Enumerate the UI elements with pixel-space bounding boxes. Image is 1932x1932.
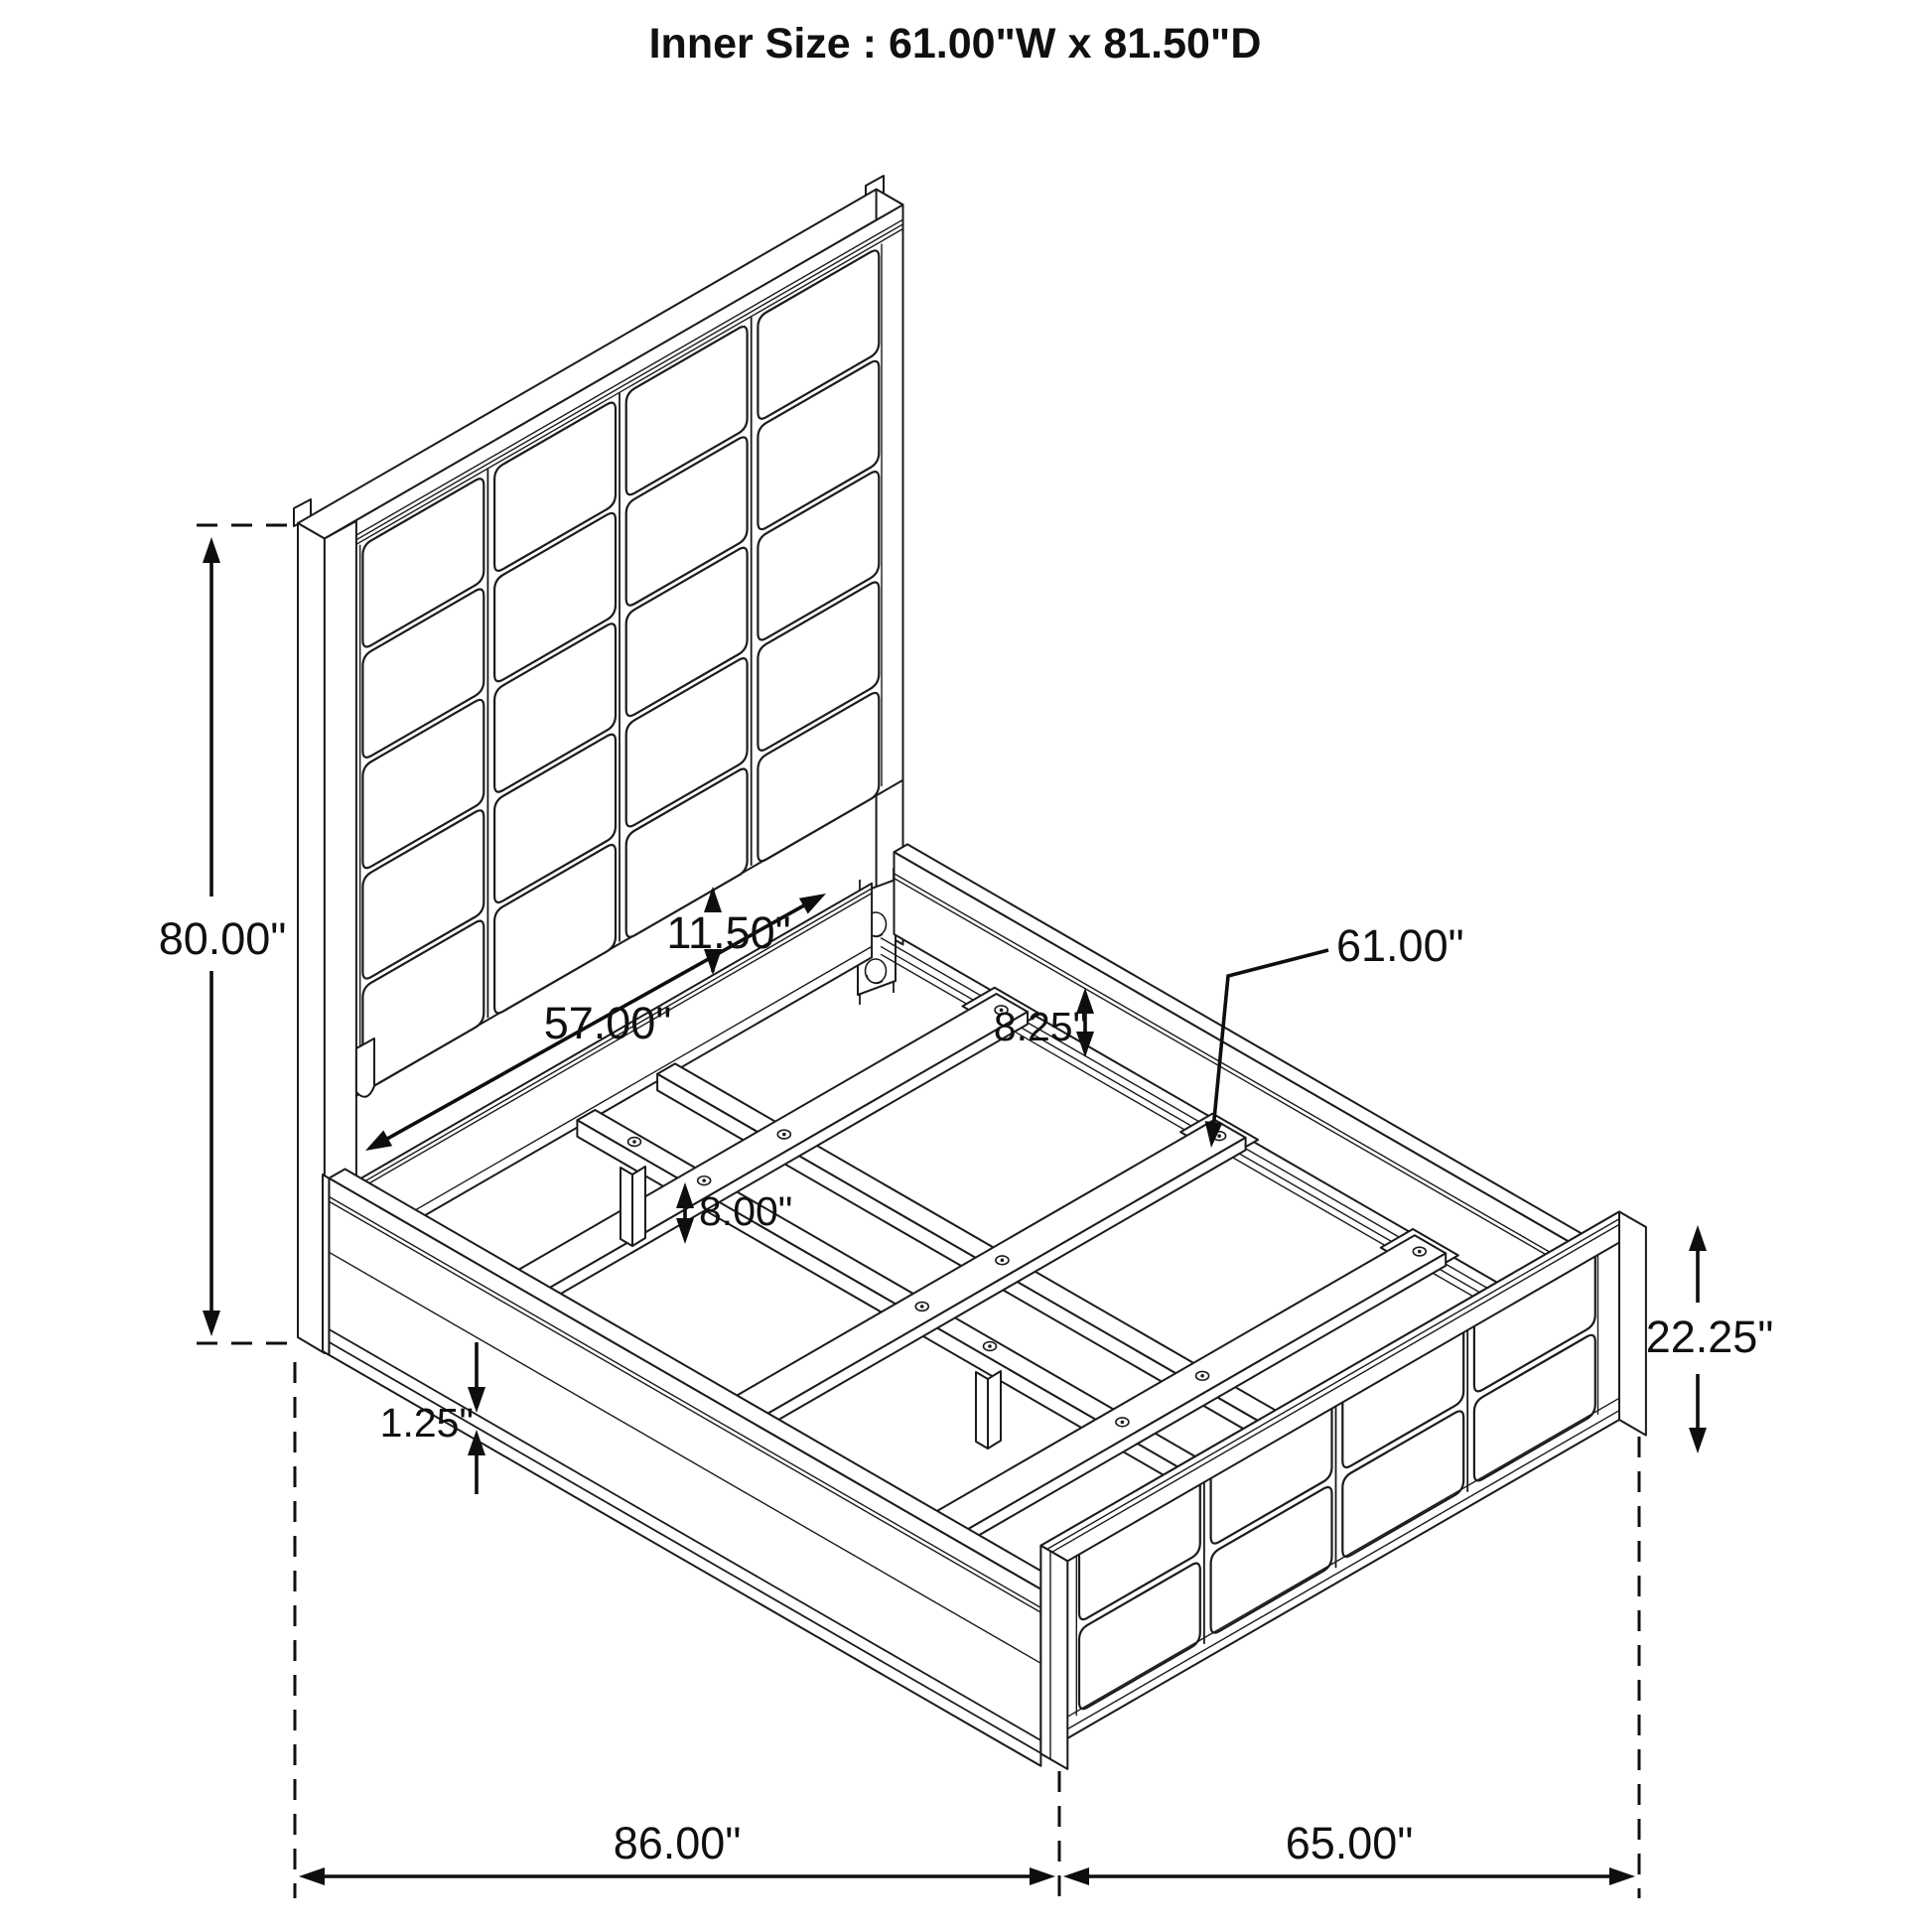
label-overall-width: 65.00" (1286, 1818, 1414, 1868)
label-side-rail-trim: 1.25" (380, 1400, 474, 1446)
slat-screw (782, 1133, 786, 1137)
diagram-page: Inner Size : 61.00"W x 81.50"D 80.00" 57… (0, 0, 1932, 1932)
headboard-back-leg (356, 1038, 374, 1097)
slat-screw (1200, 1374, 1204, 1378)
headboard-post-left-side (298, 523, 325, 1353)
arrowhead-left (1063, 1867, 1089, 1885)
slat-screw (1418, 1250, 1422, 1254)
center-leg (621, 1168, 632, 1246)
slat-screw (702, 1178, 706, 1182)
arrowhead-right (1030, 1867, 1055, 1885)
center-leg-screw (988, 1344, 992, 1348)
arrowhead-up (1689, 1225, 1707, 1251)
far-rail-trim (895, 874, 1606, 1285)
arrowhead-right (1609, 1867, 1635, 1885)
center-leg (988, 1371, 1001, 1449)
label-overall-length: 86.00" (614, 1818, 742, 1868)
arrowhead (365, 1131, 392, 1152)
diagram-title: Inner Size : 61.00"W x 81.50"D (649, 20, 1262, 68)
arrowhead-up (203, 537, 220, 563)
center-leg-screw (632, 1140, 636, 1144)
arrowhead-down (203, 1311, 220, 1336)
arrowhead-down (676, 1218, 694, 1244)
far-rail-top (895, 844, 1620, 1263)
slat-screw (1217, 1134, 1221, 1138)
footboard-right-end (1619, 1212, 1646, 1436)
bed-dimension-diagram: Inner Size : 61.00"W x 81.50"D 80.00" 57… (0, 0, 1932, 1932)
near-rail-end (323, 1174, 329, 1355)
slat-screw (1121, 1421, 1125, 1425)
far-rail-trim (895, 879, 1606, 1290)
footboard-left-end (1040, 1546, 1067, 1769)
label-center-leg-height: 8.00" (699, 1188, 792, 1234)
arrowhead-left (299, 1867, 325, 1885)
center-leg (976, 1372, 988, 1449)
label-panel-gap: 11.50" (666, 907, 790, 958)
label-headboard-height: 80.00" (159, 913, 287, 964)
slat-screw (920, 1305, 924, 1309)
arrowhead (799, 894, 826, 914)
arrowhead-down (1689, 1428, 1707, 1453)
label-footboard-height: 22.25" (1646, 1311, 1774, 1362)
label-slat-length: 61.00" (1336, 920, 1464, 971)
slat-screw (1001, 1259, 1005, 1263)
label-inner-leg-width: 57.00" (544, 998, 672, 1048)
label-rail-to-slat-drop: 8.25" (994, 1004, 1087, 1049)
center-leg (632, 1167, 645, 1246)
